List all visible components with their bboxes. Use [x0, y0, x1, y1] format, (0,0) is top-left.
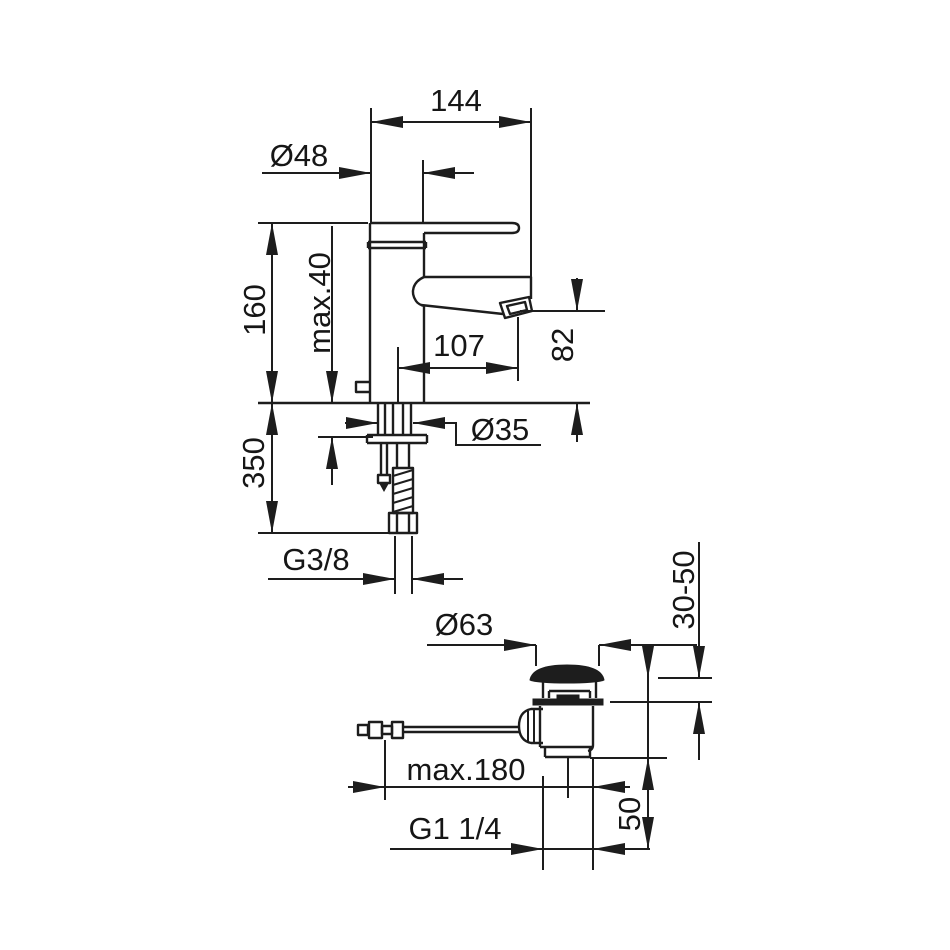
dim-82-label: 82	[545, 328, 580, 362]
dim-30-50-label: 30-50	[666, 550, 701, 629]
dim-max40: max.40	[302, 226, 373, 485]
dim-350-label: 350	[236, 437, 271, 489]
faucet-dimension-drawing: 144 Ø48 160 max.40 107 82	[0, 0, 950, 950]
dim-35: Ø35	[345, 412, 541, 447]
dim-max40-label: max.40	[302, 252, 337, 354]
dim-160-label: 160	[237, 284, 272, 336]
dim-107: 107	[398, 317, 518, 403]
dim-g38: G3/8	[268, 536, 463, 594]
dim-50-label: 50	[612, 797, 647, 831]
dim-63-label: Ø63	[435, 607, 494, 642]
dim-107-label: 107	[433, 328, 485, 363]
dim-30-50: 30-50	[610, 542, 712, 760]
dim-g114-label: G1 1/4	[408, 811, 501, 846]
dim-48-label: Ø48	[270, 138, 329, 173]
dim-max180-label: max.180	[407, 752, 526, 787]
dim-63: Ø63	[427, 607, 697, 666]
dim-max180: max.180	[348, 740, 630, 800]
popup-waste-side-view	[358, 665, 604, 757]
dim-82: 82	[520, 278, 605, 442]
dim-g38-label: G3/8	[282, 542, 349, 577]
technical-drawing-page: 144 Ø48 160 max.40 107 82	[0, 0, 950, 950]
dim-48: Ø48	[262, 138, 474, 222]
dim-144-label: 144	[430, 83, 482, 118]
dim-35-label: Ø35	[471, 412, 530, 447]
